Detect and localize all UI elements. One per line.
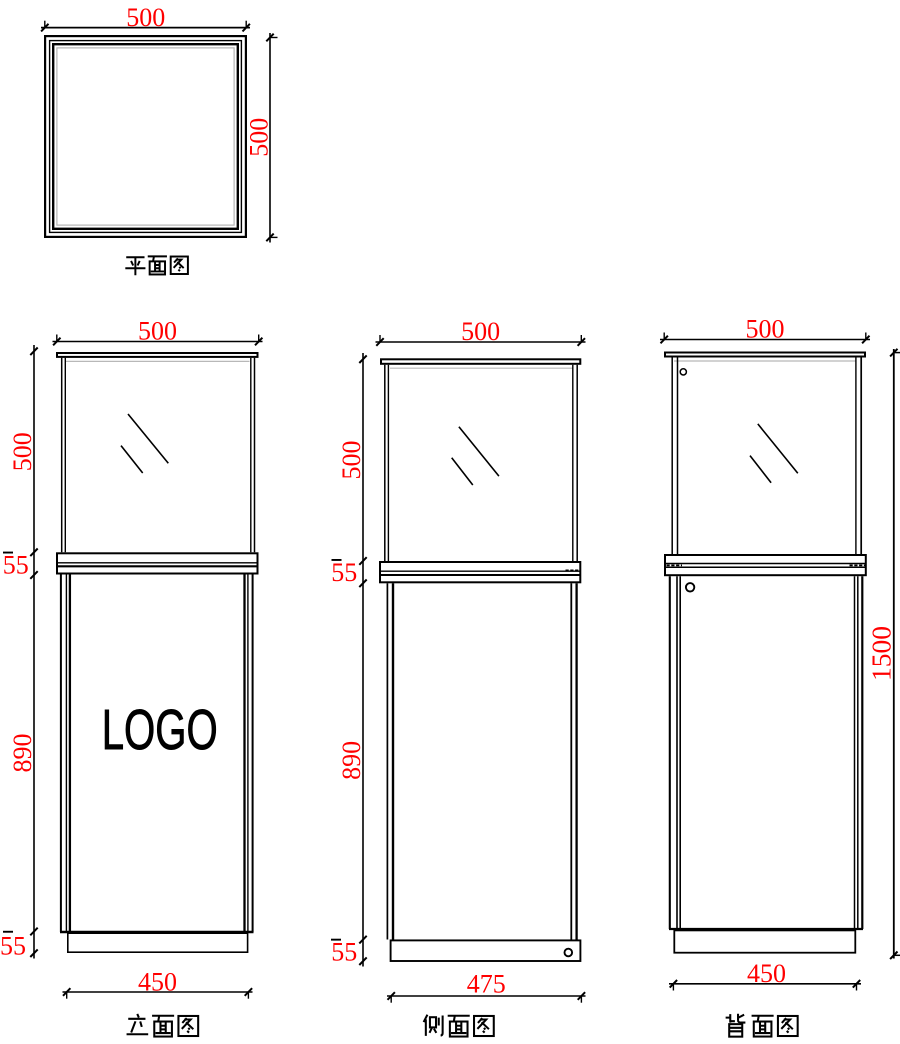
svg-text:890: 890 xyxy=(337,741,366,780)
svg-text:500: 500 xyxy=(337,441,366,480)
svg-text:890: 890 xyxy=(8,734,37,773)
svg-text:500: 500 xyxy=(8,432,37,471)
svg-text:475: 475 xyxy=(467,970,506,999)
svg-text:1500: 1500 xyxy=(865,626,896,681)
svg-text:500: 500 xyxy=(244,118,273,157)
svg-text:55: 55 xyxy=(331,558,357,587)
svg-text:500: 500 xyxy=(126,3,165,32)
svg-text:55: 55 xyxy=(0,932,26,961)
svg-text:450: 450 xyxy=(747,959,786,988)
svg-text:450: 450 xyxy=(138,967,177,996)
svg-text:55: 55 xyxy=(3,551,29,580)
svg-text:LOGO: LOGO xyxy=(102,699,218,761)
svg-text:500: 500 xyxy=(461,317,500,346)
svg-text:500: 500 xyxy=(138,317,177,346)
svg-text:500: 500 xyxy=(746,315,785,344)
svg-text:55: 55 xyxy=(331,937,357,966)
